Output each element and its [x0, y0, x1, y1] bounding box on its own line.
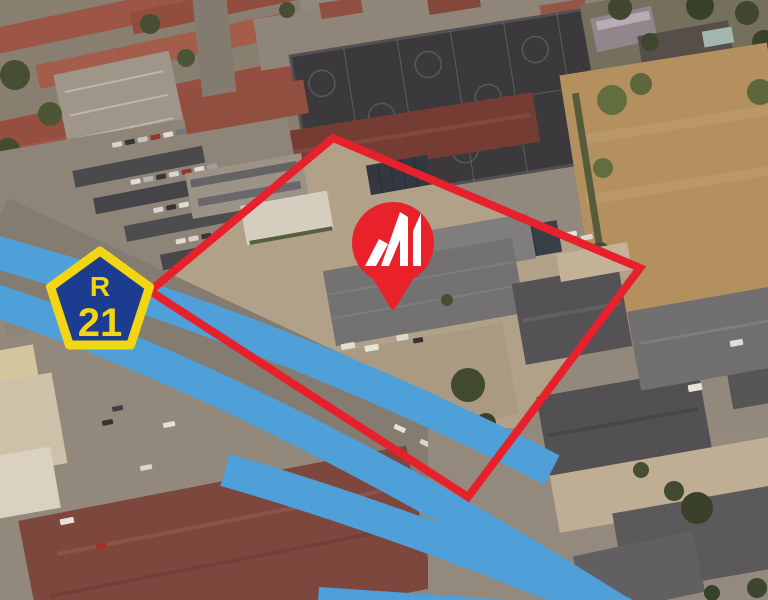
map-canvas: R 21	[0, 0, 768, 600]
aerial-map: R 21	[0, 0, 768, 600]
route-badge-number: 21	[78, 301, 123, 345]
route-badge-letter: R	[90, 271, 110, 302]
